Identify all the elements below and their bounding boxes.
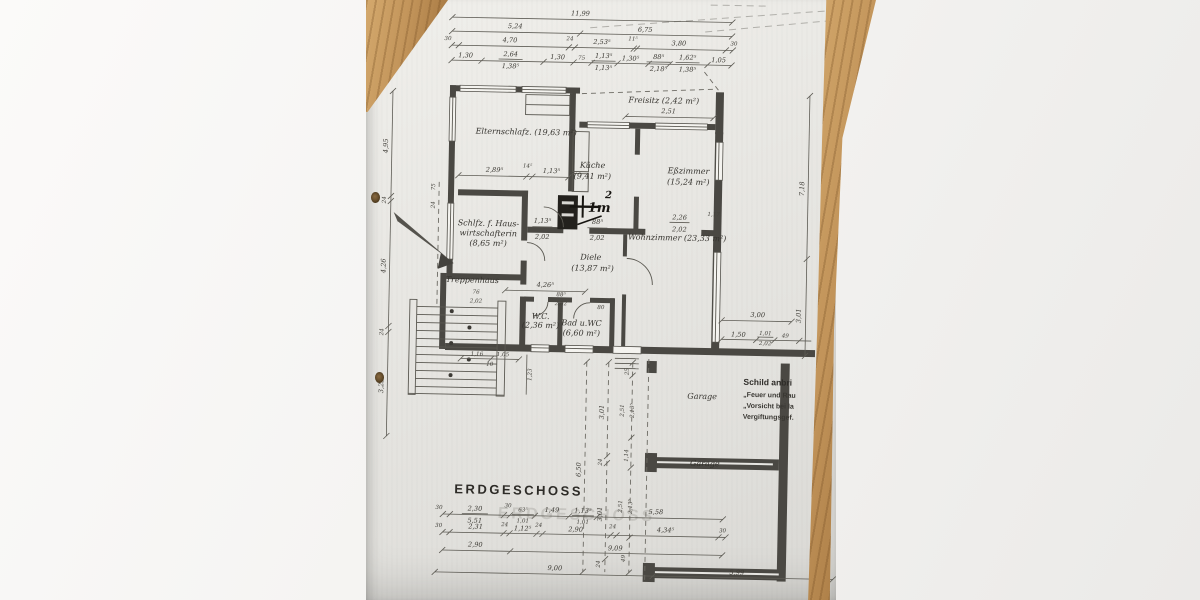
room-label-garage-1: Garage: [687, 392, 717, 402]
dim-label: 6,75: [638, 26, 653, 34]
dim-label: 1,12⁵: [514, 524, 532, 532]
dim-label: 88⁵: [556, 291, 566, 298]
dim-label: 3,01: [795, 308, 803, 323]
dim-label: 30: [730, 41, 738, 47]
room-label-kueche-area: (9,41 m²): [574, 171, 612, 181]
dim-label: 4,34⁵: [656, 526, 675, 534]
dim-label: 11,99: [571, 9, 590, 17]
dim-label: 2,51: [618, 500, 624, 514]
dim-label: 2,02: [589, 234, 605, 242]
dim-label: 2,13⁵: [627, 498, 634, 515]
dim-label: 2,26: [671, 213, 687, 221]
pen-note-text: 1m: [588, 201, 611, 216]
dim-label: 1,05: [711, 56, 726, 64]
floorplan-drawing: ERDGESCHOSS: [0, 0, 1200, 600]
dim-label: 1,13⁵: [595, 52, 613, 60]
pen-note-sup: 2: [604, 190, 612, 201]
dim-label: 24: [608, 524, 617, 530]
dim-label: 30: [719, 528, 727, 534]
dim-label: 4,26⁵: [536, 281, 555, 289]
dim-label: 30: [504, 503, 512, 509]
dim-label: 9,00: [547, 564, 562, 572]
stamp-line-1: Schild anbri: [743, 377, 792, 388]
dim-label: 25: [625, 367, 631, 376]
dim-label: 10: [486, 362, 494, 368]
dim-label: 30: [444, 36, 452, 42]
dim-label: 2,90: [567, 525, 583, 533]
room-label-schlfz-3: (8,65 m²): [469, 238, 507, 248]
stamp-line-2: „Feuer und Rau: [743, 392, 796, 400]
room-label-treppenhaus: Treppenhaus: [446, 275, 499, 285]
dim-label: 2,02: [534, 233, 550, 241]
dim-label: 1,30: [550, 53, 565, 61]
dim-label: 75: [578, 56, 586, 62]
dim-label: 1,13⁵: [534, 217, 552, 225]
dim-label: 76: [472, 290, 480, 296]
dim-label: 5,58: [649, 508, 664, 516]
dim-label: 14⁵: [523, 162, 533, 169]
dim-label: 2,51: [660, 107, 676, 115]
dim-label: 49: [621, 554, 627, 563]
dim-label: 24: [431, 201, 437, 210]
dim-label: 5,24: [508, 22, 523, 30]
dim-label: 24: [500, 522, 509, 528]
dim-label: 1,05: [497, 352, 510, 358]
room-label-bad: Bad u.WC: [560, 318, 602, 328]
dim-label: 4,95: [382, 138, 390, 154]
dim-label: 1,30: [458, 51, 473, 59]
room-label-schlfz-1: Schlfz. f. Haus-: [458, 218, 520, 228]
dim-label: 1,50: [731, 331, 746, 339]
warning-stamp: Schild anbri „Feuer und Rau „Vorsicht be…: [743, 377, 796, 422]
dim-label: 4,70: [502, 36, 518, 44]
dim-label: 1,13⁵: [595, 64, 613, 72]
room-label-wc: W.C.: [532, 312, 550, 321]
stamp-line-3: „Vorsicht bei la: [743, 403, 794, 411]
dim-label: 1,13⁵: [543, 167, 561, 175]
room-label-esszimmer-area: (15,24 m²): [667, 177, 710, 187]
dim-label: 2,13⁵: [629, 402, 636, 419]
room-label-freisitz: Freisitz (2,42 m²): [627, 95, 699, 105]
room-label-diele-area: (13,87 m²): [571, 263, 614, 273]
dim-label: 4,26: [379, 258, 387, 274]
dim-label: 5,99: [729, 569, 744, 577]
dim-label: 2,02: [469, 298, 483, 304]
dim-label: 1,38⁵: [502, 62, 520, 70]
dim-label: 3,01: [598, 405, 606, 420]
punch-hole: [375, 372, 384, 383]
dim-label: 1,17: [707, 212, 720, 218]
dim-label: 2,31: [467, 522, 483, 530]
dim-label: 2,02: [554, 301, 568, 307]
dim-label: 24: [534, 523, 543, 529]
dim-label: 1,13⁵: [574, 507, 592, 515]
dim-label: 3,01: [596, 507, 604, 522]
room-label-garage-2: Garage: [690, 459, 720, 469]
dim-label: 1,16: [471, 352, 484, 358]
room-label-bad-area: (6,60 m²): [563, 328, 601, 338]
room-label-esszimmer: Eßzimmer: [667, 166, 711, 176]
dim-label: 30: [435, 523, 443, 529]
page-title: ERDGESCHOSS: [454, 481, 583, 498]
dim-label: 9,09: [608, 544, 623, 552]
copy-artifact-dashes: [590, 3, 833, 35]
room-labels: Elternschlafz. (19,63 m²) Freisitz (2,42…: [442, 92, 729, 468]
dim-label: 1,14: [624, 449, 630, 462]
dim-label: 1,62⁵: [679, 53, 697, 61]
room-label-wc-area: (2,36 m²): [522, 321, 560, 331]
dim-label: 11⁵: [628, 35, 638, 42]
room-label-schlfz-2: wirtschafterin: [459, 228, 517, 238]
dim-label: 63⁵: [518, 506, 528, 513]
dim-label: 24: [565, 36, 574, 42]
punch-hole: [371, 192, 380, 203]
dim-label: 80: [597, 305, 605, 311]
dim-label: 2,89⁵: [485, 166, 504, 174]
dim-label: 30: [435, 505, 443, 511]
dim-label: 2,51: [620, 404, 626, 418]
dim-label: 1,30⁵: [622, 54, 640, 62]
dim-label: 1,01: [759, 331, 772, 337]
dim-label: 1,38⁵: [679, 65, 697, 73]
dim-label: 3,00: [750, 311, 765, 319]
dim-label: 24: [379, 328, 385, 337]
room-label-elternschlafzimmer: Elternschlafz. (19,63 m²): [475, 127, 577, 138]
dim-label: 2,64: [502, 50, 518, 58]
dim-label: 2,02: [671, 225, 687, 233]
dim-label: 75: [431, 183, 437, 191]
dim-label: 7,18: [798, 181, 806, 196]
dim-label: 6,50: [575, 462, 583, 477]
dim-label: 2,90: [467, 540, 483, 548]
room-label-wohnzimmer: Wohnzimmer (23,33 m²): [628, 233, 726, 244]
dim-label: 2,53⁵: [592, 38, 611, 46]
dim-label: 1,49: [545, 506, 560, 514]
dim-label: 49: [781, 333, 790, 339]
dim-label: 2,02: [758, 341, 772, 347]
dim-label: 1,23: [527, 368, 533, 381]
room-label-diele: Diele: [579, 253, 601, 262]
dimension-labels: 11,99 5,24 6,75 30 4,70 24 2,53⁵ 11⁵ 3,8…: [374, 6, 810, 578]
dim-label: 3,80: [672, 39, 687, 47]
dim-label: 24: [596, 560, 602, 569]
stamp-line-4: Vergiftungsgef.: [743, 414, 794, 422]
dim-label: 88⁵: [653, 53, 665, 61]
dim-label: 24: [382, 196, 388, 205]
dim-label: 24: [598, 458, 604, 467]
dim-label: 2,18⁵: [649, 65, 668, 73]
dim-label: 2,30: [467, 504, 483, 512]
room-label-kueche: Küche: [579, 161, 606, 171]
